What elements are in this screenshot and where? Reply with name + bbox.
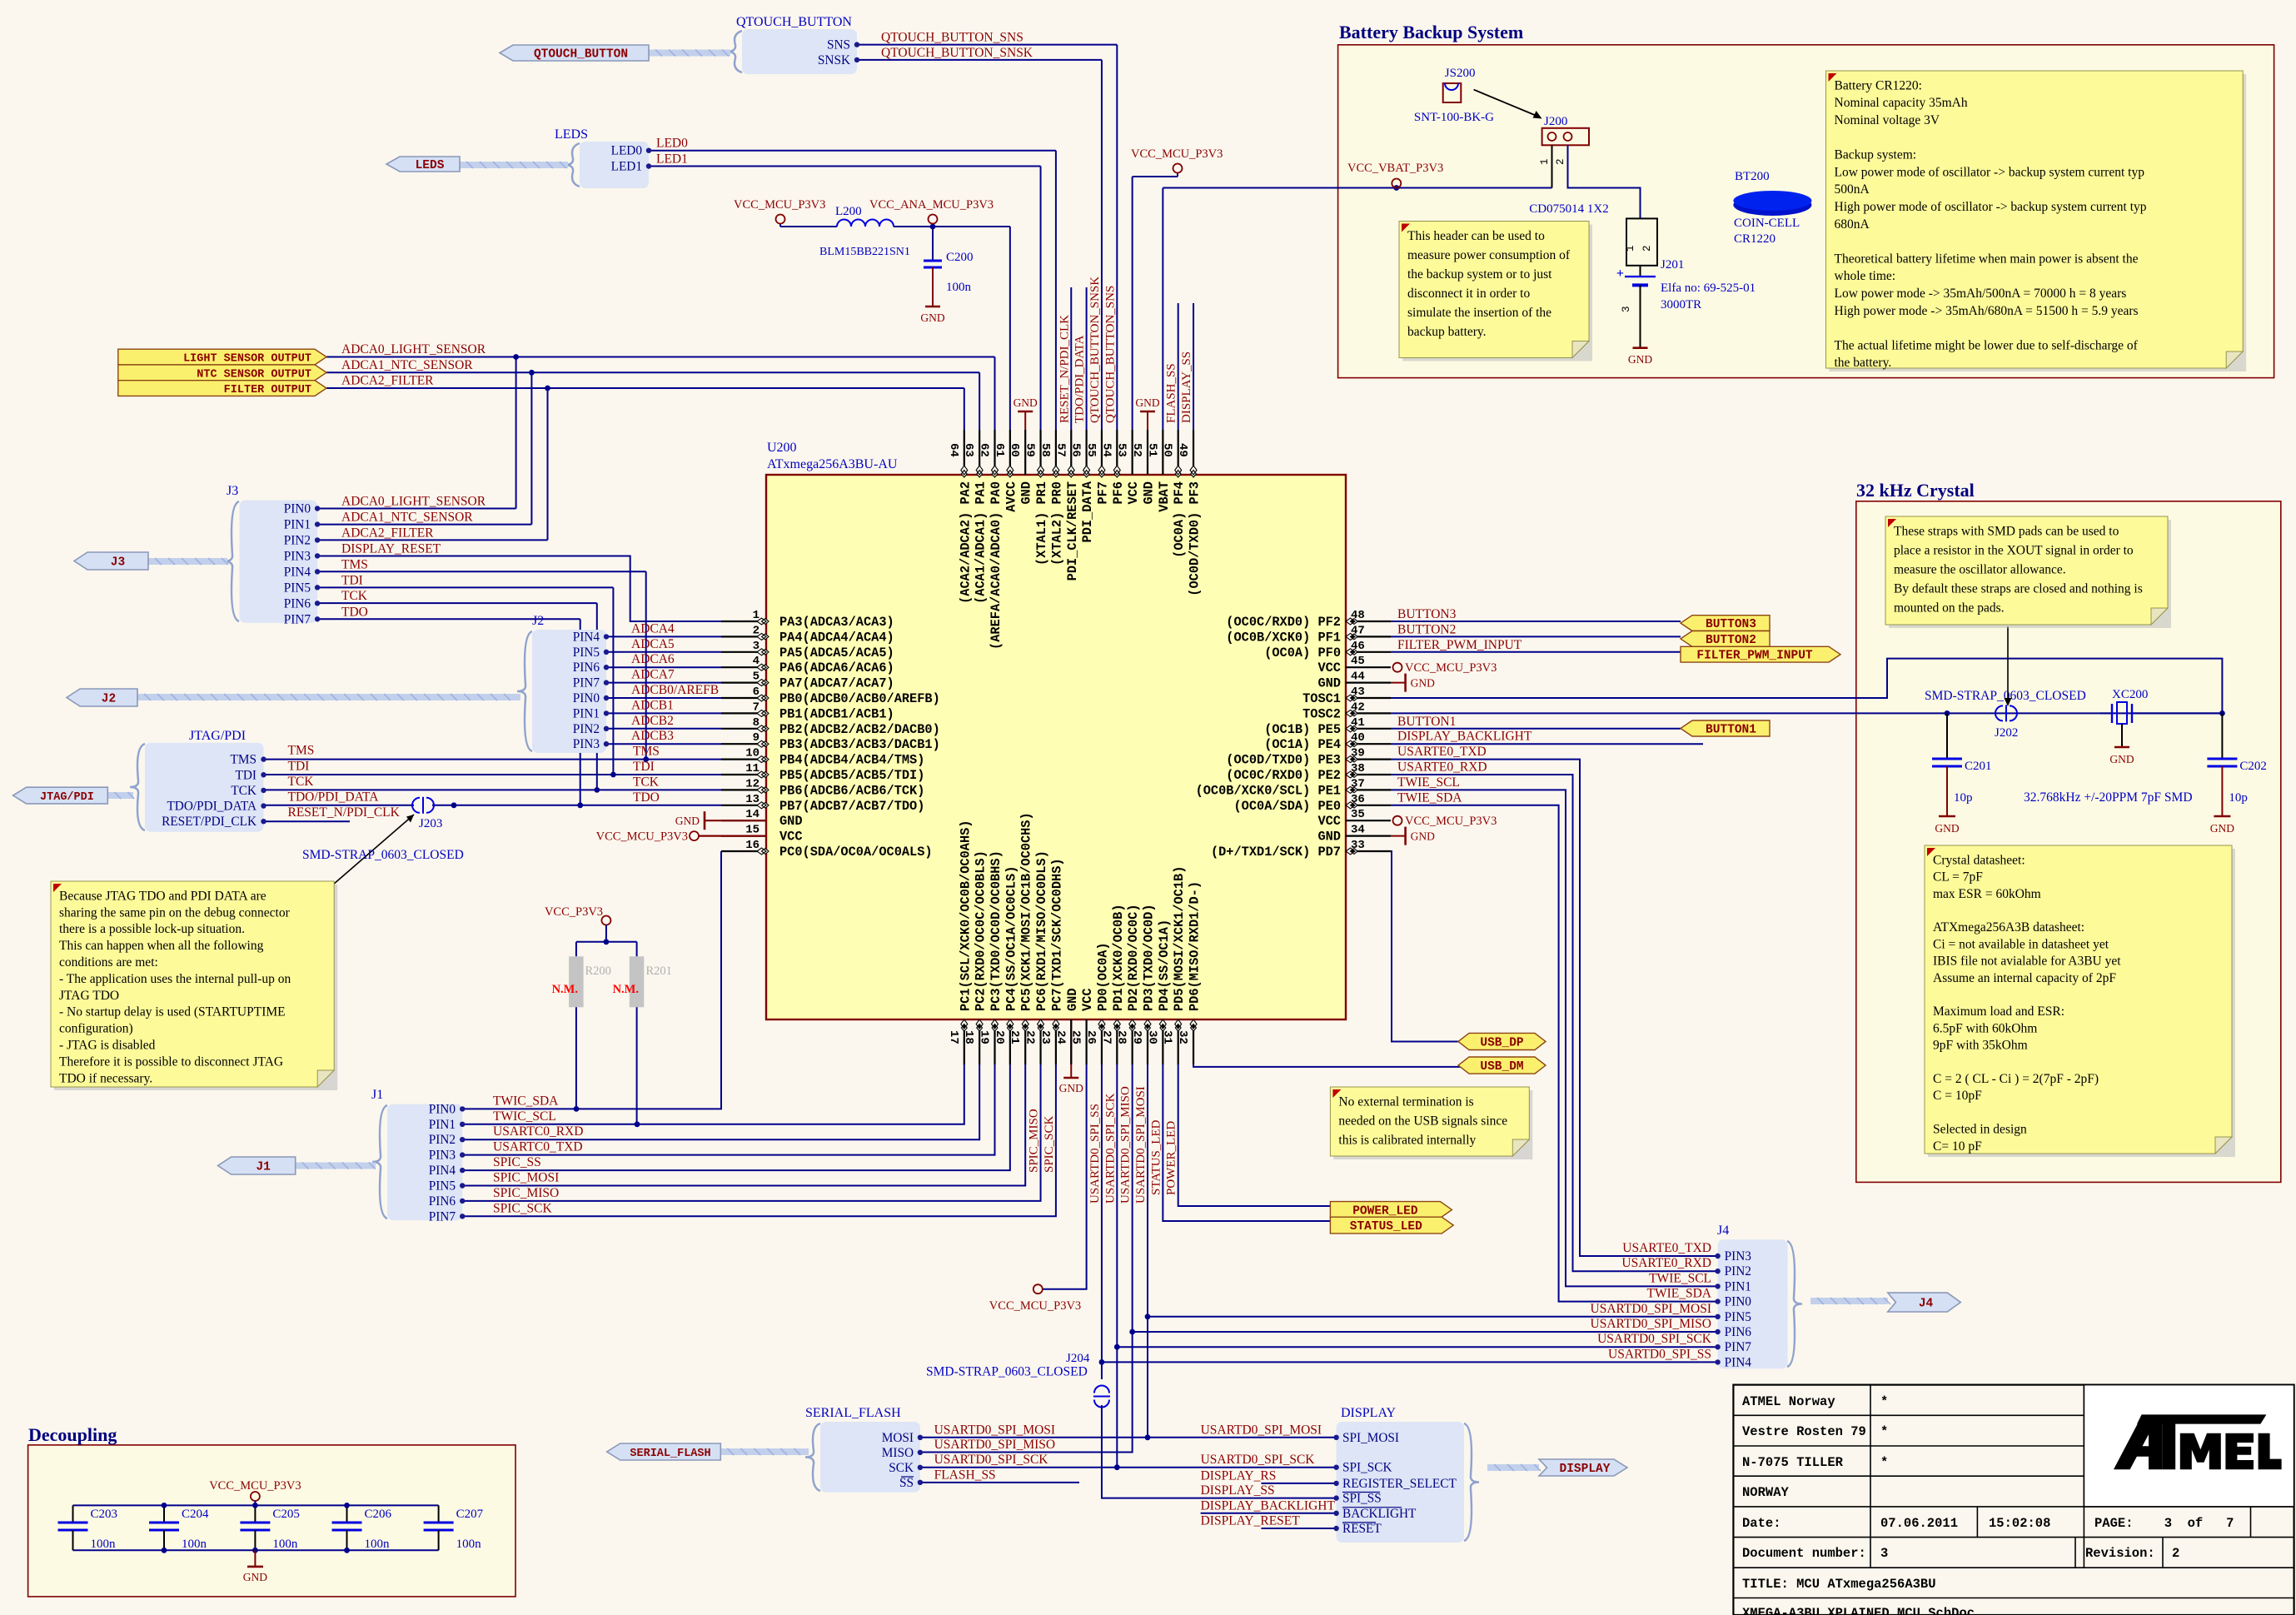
svg-text:SPIC_SS: SPIC_SS: [493, 1155, 541, 1169]
svg-text:Selected in design: Selected in design: [1933, 1123, 2027, 1137]
svg-text:15: 15: [745, 824, 760, 837]
svg-text:TDO: TDO: [633, 790, 660, 805]
svg-text:VCC: VCC: [1080, 988, 1095, 1011]
svg-text:TWIE_SDA: TWIE_SDA: [1397, 790, 1462, 805]
svg-text:14: 14: [745, 808, 760, 821]
svg-text:DISPLAY_RESET: DISPLAY_RESET: [341, 542, 441, 556]
svg-text:PC3(TXD0/OC0D/OC0BHS): PC3(TXD0/OC0D/OC0BHS): [989, 850, 1004, 1011]
svg-text:PIN1: PIN1: [1725, 1279, 1751, 1293]
svg-text:+: +: [1616, 267, 1624, 281]
svg-text:JTAG/PDI: JTAG/PDI: [189, 729, 246, 743]
svg-text:No external termination is: No external termination is: [1338, 1094, 1473, 1109]
svg-text:J202: J202: [1995, 726, 2018, 740]
svg-text:PC2(RXD0/OC0C/OC0BLS): PC2(RXD0/OC0C/OC0BLS): [974, 850, 989, 1011]
svg-text:42: 42: [1351, 700, 1365, 714]
svg-text:Decoupling: Decoupling: [28, 1424, 117, 1445]
svg-text:conditions are met:: conditions are met:: [59, 955, 158, 969]
svg-text:FILTER_PWM_INPUT: FILTER_PWM_INPUT: [1397, 638, 1522, 652]
svg-text:61: 61: [993, 443, 1006, 457]
svg-text:SPI_SCK: SPI_SCK: [1342, 1461, 1392, 1475]
svg-text:C205: C205: [272, 1508, 300, 1521]
svg-text:TCK: TCK: [341, 589, 368, 603]
svg-text:C200: C200: [946, 251, 974, 264]
svg-text:FLASH_SS: FLASH_SS: [934, 1468, 996, 1482]
svg-text:High power mode of oscillator: High power mode of oscillator -> backup …: [1835, 200, 2147, 214]
svg-text:TDO/PDI_DATA: TDO/PDI_DATA: [1073, 335, 1087, 423]
svg-text:BUTTON2: BUTTON2: [1706, 634, 1756, 647]
svg-text:(OC0A) PF4: (OC0A) PF4: [1172, 481, 1187, 558]
svg-text:QTOUCH_BUTTON_SNSK: QTOUCH_BUTTON_SNSK: [1088, 277, 1102, 423]
svg-text:C207: C207: [456, 1508, 484, 1521]
svg-text:TITLE: MCU ATxmega256A3BU: TITLE: MCU ATxmega256A3BU: [1742, 1577, 1936, 1592]
svg-text:30: 30: [1145, 1030, 1158, 1044]
svg-text:DISPLAY_RS: DISPLAY_RS: [1201, 1468, 1277, 1483]
svg-text:43: 43: [1351, 685, 1365, 699]
svg-text:CD075014 1X2: CD075014 1X2: [1529, 202, 1608, 216]
svg-text:TCK: TCK: [633, 775, 660, 789]
svg-text:20: 20: [993, 1030, 1006, 1044]
svg-text:(OC0B/XCK0) PF1: (OC0B/XCK0) PF1: [1226, 630, 1341, 645]
svg-text:FLASH_SS: FLASH_SS: [1165, 363, 1178, 423]
svg-text:36: 36: [1351, 793, 1365, 806]
svg-text:USARTD0_SPI_MISO: USARTD0_SPI_MISO: [934, 1438, 1056, 1452]
svg-text:J3: J3: [111, 556, 125, 570]
svg-text:3: 3: [753, 640, 760, 653]
svg-text:VCC_P3V3: VCC_P3V3: [545, 905, 603, 919]
svg-text:PIN5: PIN5: [1725, 1310, 1752, 1324]
svg-text:J4: J4: [1919, 1298, 1934, 1311]
svg-text:PD3(TXD0/OC0D): PD3(TXD0/OC0D): [1142, 904, 1157, 1011]
svg-text:BUTTON1: BUTTON1: [1397, 715, 1456, 729]
svg-text:ADCA1_NTC_SENSOR: ADCA1_NTC_SENSOR: [341, 358, 473, 372]
svg-text:15:02:08: 15:02:08: [1989, 1516, 2050, 1531]
svg-text:L200: L200: [835, 205, 862, 218]
svg-text:USARTD0_SPI_MOSI: USARTD0_SPI_MOSI: [934, 1423, 1056, 1437]
svg-text:RESET: RESET: [1342, 1522, 1382, 1536]
svg-text:Low power mode -> 35mAh/500nA: Low power mode -> 35mAh/500nA = 70000 h …: [1835, 287, 2127, 301]
svg-text:USARTD0_SPI_SCK: USARTD0_SPI_SCK: [1597, 1332, 1712, 1346]
svg-text:Maximum load and ESR:: Maximum load and ESR:: [1933, 1004, 2064, 1019]
svg-text:Date:: Date:: [1742, 1516, 1781, 1531]
svg-text:48: 48: [1351, 609, 1365, 622]
svg-text:TCK: TCK: [231, 784, 256, 798]
svg-text:45: 45: [1351, 655, 1365, 668]
svg-text:SNT-100-BK-G: SNT-100-BK-G: [1414, 111, 1494, 124]
svg-text:34: 34: [1351, 824, 1365, 837]
svg-text:TCK: TCK: [288, 775, 315, 789]
svg-text:25: 25: [1069, 1030, 1083, 1044]
svg-text:BUTTON2: BUTTON2: [1397, 622, 1456, 636]
svg-text:GND: GND: [1135, 396, 1159, 409]
svg-text:USARTD0_SPI_MISO: USARTD0_SPI_MISO: [1591, 1317, 1712, 1331]
svg-text:J201: J201: [1661, 258, 1684, 272]
svg-text:LED1: LED1: [611, 159, 642, 173]
svg-text:PC0(SDA/OC0A/OC0ALS): PC0(SDA/OC0A/OC0ALS): [779, 845, 933, 860]
svg-text:PIN4: PIN4: [1725, 1355, 1752, 1369]
svg-text:28: 28: [1115, 1030, 1128, 1044]
svg-text:PIN2: PIN2: [1725, 1264, 1751, 1279]
svg-text:SPIC_MISO: SPIC_MISO: [1028, 1109, 1041, 1173]
svg-text:PB2(ADCB2/ACB2/DACB0): PB2(ADCB2/ACB2/DACB0): [779, 722, 940, 737]
svg-text:N.M.: N.M.: [613, 983, 639, 996]
svg-text:GND: GND: [1019, 481, 1034, 505]
svg-text:18: 18: [962, 1030, 975, 1044]
svg-text:TOSC1: TOSC1: [1302, 691, 1341, 706]
svg-text:PIN4: PIN4: [284, 565, 311, 579]
svg-text:(OC0A) PF0: (OC0A) PF0: [1264, 646, 1341, 660]
svg-text:USARTD0_SPI_SCK: USARTD0_SPI_SCK: [1201, 1453, 1316, 1467]
svg-text:VCC_MCU_P3V3: VCC_MCU_P3V3: [209, 1479, 301, 1493]
svg-text:PIN0: PIN0: [284, 502, 311, 516]
svg-text:Assume an internal capacity of: Assume an internal capacity of 2pF: [1933, 971, 2116, 985]
svg-text:(D+/TXD1/SCK) PD7: (D+/TXD1/SCK) PD7: [1211, 845, 1341, 860]
svg-text:PIN3: PIN3: [429, 1149, 456, 1163]
svg-text:LED1: LED1: [656, 152, 688, 167]
svg-text:54: 54: [1099, 443, 1113, 457]
svg-text:LED0: LED0: [611, 144, 643, 158]
svg-text:PD6(MISO/RXD1/D-): PD6(MISO/RXD1/D-): [1188, 881, 1203, 1011]
svg-text:ADCA1_NTC_SENSOR: ADCA1_NTC_SENSOR: [341, 511, 473, 525]
svg-text:PIN4: PIN4: [573, 630, 600, 644]
svg-text:8: 8: [753, 716, 760, 730]
svg-text:VCC_MCU_P3V3: VCC_MCU_P3V3: [734, 198, 825, 212]
svg-text:USARTD0_SPI_MOSI: USARTD0_SPI_MOSI: [1134, 1086, 1148, 1204]
svg-text:BT200: BT200: [1735, 170, 1770, 183]
svg-text:Ci = not available in datashee: Ci = not available in datasheet yet: [1933, 937, 2109, 951]
svg-text:2: 2: [1641, 245, 1653, 252]
svg-text:The actual lifetime might be l: The actual lifetime might be lower due t…: [1835, 338, 2139, 352]
svg-text:PB3(ADCB3/ACB3/DACB1): PB3(ADCB3/ACB3/DACB1): [779, 737, 940, 752]
svg-text:500nA: 500nA: [1835, 182, 1870, 197]
svg-text:TDI: TDI: [341, 573, 363, 587]
svg-text:SERIAL_FLASH: SERIAL_FLASH: [805, 1406, 901, 1420]
svg-text:11: 11: [745, 762, 760, 775]
svg-text:2: 2: [753, 624, 760, 637]
svg-text:2: 2: [1555, 158, 1566, 165]
svg-text:44: 44: [1351, 670, 1365, 684]
svg-text:DISPLAY_BACKLIGHT: DISPLAY_BACKLIGHT: [1201, 1498, 1336, 1513]
svg-text:BUTTON3: BUTTON3: [1397, 607, 1457, 621]
svg-text:DISPLAY_SS: DISPLAY_SS: [1201, 1483, 1275, 1498]
svg-text:USARTC0_TXD: USARTC0_TXD: [493, 1140, 583, 1154]
svg-text:RESET_N/PDI_CLK: RESET_N/PDI_CLK: [1058, 315, 1071, 423]
svg-text:1: 1: [1539, 158, 1551, 165]
svg-text:IBIS file not avialable for A3: IBIS file not avialable for A3BU yet: [1933, 955, 2121, 969]
svg-text:*: *: [1880, 1455, 1888, 1470]
svg-text:C203: C203: [91, 1508, 118, 1521]
svg-text:Backup system:: Backup system:: [1835, 148, 1917, 162]
svg-text:Nominal capacity 35mAh: Nominal capacity 35mAh: [1835, 96, 1968, 110]
svg-text:PF7: PF7: [1095, 481, 1110, 505]
svg-text:ATxmega256A3BU-AU: ATxmega256A3BU-AU: [767, 457, 898, 471]
svg-text:33: 33: [1351, 839, 1365, 852]
svg-text:J4: J4: [1717, 1224, 1729, 1238]
svg-text:GND: GND: [675, 815, 700, 827]
svg-text:STATUS_LED: STATUS_LED: [1350, 1220, 1422, 1234]
svg-text:QTOUCH_BUTTON_SNS: QTOUCH_BUTTON_SNS: [881, 31, 1023, 45]
svg-text:PD2(RXD0/OC0C): PD2(RXD0/OC0C): [1126, 904, 1141, 1011]
svg-text:TMS: TMS: [288, 744, 315, 758]
svg-text:PD5(MOSI/XCK1/OC1B): PD5(MOSI/XCK1/OC1B): [1172, 866, 1187, 1011]
svg-text:PAGE: 3 of 7: PAGE: 3 of 7: [2094, 1516, 2234, 1531]
svg-text:(OC0D/TXD0) PE3: (OC0D/TXD0) PE3: [1226, 753, 1341, 768]
svg-text:CL = 7pF: CL = 7pF: [1933, 870, 1983, 885]
svg-text:40: 40: [1351, 731, 1365, 745]
svg-text:Elfa no: 69-525-01: Elfa no: 69-525-01: [1661, 282, 1756, 295]
svg-text:24: 24: [1053, 1030, 1067, 1044]
svg-text:measure power consumption of: measure power consumption of: [1407, 248, 1571, 262]
svg-text:PIN3: PIN3: [573, 737, 600, 751]
svg-text:C = 10pF: C = 10pF: [1933, 1089, 1982, 1103]
svg-text:C201: C201: [1965, 760, 1992, 773]
svg-text:56: 56: [1069, 443, 1083, 457]
svg-text:FILTER_PWM_INPUT: FILTER_PWM_INPUT: [1696, 650, 1813, 663]
svg-text:SMD-STRAP_0603_CLOSED: SMD-STRAP_0603_CLOSED: [1925, 689, 2086, 703]
svg-text:35: 35: [1351, 808, 1365, 821]
svg-text:RESET/PDI_CLK: RESET/PDI_CLK: [162, 815, 256, 829]
svg-text:Theoretical battery lifetime w: Theoretical battery lifetime when main p…: [1835, 252, 2139, 266]
svg-text:VCC_MCU_P3V3: VCC_MCU_P3V3: [596, 830, 688, 844]
svg-text:USARTE0_RXD: USARTE0_RXD: [1397, 760, 1487, 775]
svg-text:POWER_LED: POWER_LED: [1165, 1121, 1178, 1195]
svg-text:PIN2: PIN2: [573, 722, 600, 736]
svg-text:CR1220: CR1220: [1734, 232, 1776, 246]
svg-text:2: 2: [2172, 1546, 2179, 1561]
svg-text:27: 27: [1099, 1030, 1113, 1044]
svg-text:R201: R201: [646, 965, 672, 978]
svg-text:9: 9: [753, 731, 760, 745]
svg-text:100n: 100n: [946, 281, 972, 294]
svg-text:TWIE_SCL: TWIE_SCL: [1649, 1271, 1711, 1285]
svg-text:GND: GND: [920, 312, 944, 324]
svg-text:ADCA7: ADCA7: [631, 668, 675, 682]
svg-text:TMS: TMS: [231, 753, 256, 767]
svg-text:USB_DM: USB_DM: [1480, 1060, 1523, 1074]
svg-text:U200: U200: [767, 441, 797, 455]
svg-text:PA3(ADCA3/ACA3): PA3(ADCA3/ACA3): [779, 615, 894, 630]
svg-text:(ACA2/ADCA2) PA2: (ACA2/ADCA2) PA2: [958, 481, 973, 604]
svg-text:GND: GND: [2210, 822, 2234, 835]
svg-text:PD4(SS/OC1A): PD4(SS/OC1A): [1157, 920, 1172, 1011]
svg-text:PIN6: PIN6: [1725, 1325, 1752, 1339]
svg-text:max ESR = 60kOhm: max ESR = 60kOhm: [1933, 887, 2041, 901]
svg-text:PD0(OC0A): PD0(OC0A): [1095, 942, 1110, 1011]
svg-text:PA7(ADCA7/ACA7): PA7(ADCA7/ACA7): [779, 676, 894, 691]
svg-text:TDI: TDI: [288, 759, 310, 773]
svg-text:BUTTON1: BUTTON1: [1706, 724, 1756, 737]
svg-text:VCC: VCC: [1126, 481, 1141, 505]
svg-text:PIN7: PIN7: [429, 1209, 456, 1224]
svg-text:(XTAL1) PR1: (XTAL1) PR1: [1034, 481, 1049, 566]
svg-text:mounted on the pads.: mounted on the pads.: [1894, 601, 2005, 615]
svg-text:J200: J200: [1544, 115, 1567, 128]
svg-text:PIN7: PIN7: [573, 676, 600, 690]
svg-text:PIN3: PIN3: [1725, 1249, 1752, 1264]
svg-text:07.06.2011: 07.06.2011: [1880, 1516, 1958, 1531]
svg-text:SPIC_SCK: SPIC_SCK: [1043, 1115, 1056, 1173]
svg-text:PIN7: PIN7: [284, 612, 311, 626]
svg-text:DISPLAY_BACKLIGHT: DISPLAY_BACKLIGHT: [1397, 730, 1532, 744]
svg-text:PB1(ADCB1/ACB1): PB1(ADCB1/ACB1): [779, 706, 894, 721]
svg-text:5: 5: [753, 670, 760, 684]
svg-text:VCC_ANA_MCU_P3V3: VCC_ANA_MCU_P3V3: [869, 198, 994, 212]
svg-text:VBAT: VBAT: [1157, 481, 1172, 512]
svg-text:C206: C206: [365, 1508, 392, 1521]
svg-text:USARTD0_SPI_MOSI: USARTD0_SPI_MOSI: [1201, 1423, 1322, 1437]
svg-text:38: 38: [1351, 762, 1365, 775]
svg-text:USARTC0_RXD: USARTC0_RXD: [493, 1124, 583, 1139]
svg-text:QTOUCH_BUTTON_SNS: QTOUCH_BUTTON_SNS: [1103, 286, 1117, 423]
svg-text:LEDS: LEDS: [555, 127, 588, 142]
svg-text:COIN-CELL: COIN-CELL: [1734, 217, 1800, 230]
svg-text:*: *: [1880, 1424, 1888, 1439]
svg-text:- No startup delay is used (ST: - No startup delay is used (STARTUPTIME: [59, 1005, 286, 1019]
svg-text:37: 37: [1351, 777, 1365, 790]
svg-text:MISO: MISO: [882, 1446, 914, 1460]
svg-text:QTOUCH_BUTTON: QTOUCH_BUTTON: [736, 15, 852, 29]
svg-text:QTOUCH_BUTTON_SNSK: QTOUCH_BUTTON_SNSK: [881, 46, 1033, 60]
svg-text:These straps with SMD pads can: These straps with SMD pads can be used t…: [1894, 524, 2119, 538]
svg-text:TDI: TDI: [236, 768, 257, 782]
svg-text:TDO if necessary.: TDO if necessary.: [59, 1071, 152, 1085]
svg-text:J203: J203: [419, 817, 442, 830]
svg-text:ADCB0/AREFB: ADCB0/AREFB: [631, 683, 719, 697]
svg-text:3: 3: [1880, 1546, 1888, 1561]
svg-text:DISPLAY_SS: DISPLAY_SS: [1180, 351, 1193, 423]
svg-text:(AREFA/ACA0/ADCA0) PA0: (AREFA/ACA0/ADCA0) PA0: [989, 481, 1004, 650]
svg-text:Vestre Rosten 79: Vestre Rosten 79: [1742, 1424, 1866, 1439]
svg-text:LED0: LED0: [656, 137, 688, 151]
svg-text:SMD-STRAP_0603_CLOSED: SMD-STRAP_0603_CLOSED: [926, 1365, 1088, 1379]
svg-text:PC7(TXD1/SCK/OC0DHS): PC7(TXD1/SCK/OC0DHS): [1049, 858, 1064, 1011]
svg-text:50: 50: [1161, 443, 1174, 457]
svg-text:C202: C202: [2239, 760, 2267, 773]
svg-text:TMS: TMS: [341, 557, 368, 571]
svg-text:(OC0D/TXD0) PF3: (OC0D/TXD0) PF3: [1188, 481, 1203, 596]
svg-text:1: 1: [753, 609, 760, 622]
svg-text:3000TR: 3000TR: [1661, 298, 1701, 312]
svg-text:47: 47: [1351, 624, 1365, 637]
svg-text:GND: GND: [1935, 822, 1959, 835]
svg-text:measure the oscillator allowan: measure the oscillator allowance.: [1894, 562, 2066, 576]
svg-text:PIN3: PIN3: [284, 549, 311, 563]
svg-text:REGISTER_SELECT: REGISTER_SELECT: [1342, 1477, 1457, 1491]
svg-text:(OC0C/RXD0) PF2: (OC0C/RXD0) PF2: [1226, 615, 1341, 630]
svg-text:PDI_CLK/RESET: PDI_CLK/RESET: [1065, 481, 1080, 581]
svg-text:ATMEL Norway: ATMEL Norway: [1742, 1394, 1835, 1409]
svg-text:C = 2 ( CL - Ci ) = 2(7pF - 2p: C = 2 ( CL - Ci ) = 2(7pF - 2pF): [1933, 1072, 2099, 1086]
svg-text:SNS: SNS: [827, 38, 850, 52]
svg-text:39: 39: [1351, 747, 1365, 760]
svg-text:USARTD0_SPI_SCK: USARTD0_SPI_SCK: [934, 1453, 1049, 1467]
svg-text:PIN1: PIN1: [429, 1118, 456, 1132]
svg-text:BUTTON3: BUTTON3: [1706, 618, 1756, 631]
svg-text:10p: 10p: [2229, 791, 2248, 805]
svg-text:PIN2: PIN2: [284, 533, 311, 547]
svg-text:59: 59: [1023, 443, 1037, 457]
svg-text:PIN6: PIN6: [573, 660, 600, 675]
svg-text:this is calibrated internally: this is calibrated internally: [1338, 1133, 1476, 1147]
svg-text:VCC: VCC: [779, 830, 803, 845]
svg-text:BACKLIGHT: BACKLIGHT: [1342, 1507, 1417, 1521]
svg-text:TWIC_SCL: TWIC_SCL: [493, 1109, 556, 1124]
svg-text:100n: 100n: [365, 1538, 391, 1551]
svg-text:QTOUCH_BUTTON: QTOUCH_BUTTON: [534, 48, 628, 62]
svg-text:Crystal datasheet:: Crystal datasheet:: [1933, 853, 2025, 867]
svg-text:ADCB2: ADCB2: [631, 714, 674, 728]
svg-text:sharing the same pin on the de: sharing the same pin on the debug connec…: [59, 905, 291, 920]
svg-text:SPI_MOSI: SPI_MOSI: [1342, 1431, 1399, 1445]
svg-text:(XTAL2) PR0: (XTAL2) PR0: [1049, 481, 1064, 566]
svg-text:PA6(ADCA6/ACA6): PA6(ADCA6/ACA6): [779, 660, 894, 675]
svg-text:TWIC_SDA: TWIC_SDA: [493, 1094, 559, 1108]
svg-text:100n: 100n: [91, 1538, 117, 1551]
svg-text:(OC1A) PE4: (OC1A) PE4: [1264, 737, 1341, 752]
svg-text:PB7(ADCB7/ACB7/TDO): PB7(ADCB7/ACB7/TDO): [779, 799, 924, 814]
svg-text:SPIC_SCK: SPIC_SCK: [493, 1201, 552, 1215]
svg-text:- JTAG is disabled: - JTAG is disabled: [59, 1039, 156, 1053]
svg-text:GND: GND: [1142, 481, 1157, 505]
svg-text:13: 13: [745, 793, 760, 806]
svg-text:46: 46: [1351, 640, 1365, 653]
svg-text:VCC_VBAT_P3V3: VCC_VBAT_P3V3: [1347, 162, 1443, 175]
svg-text:LIGHT SENSOR OUTPUT: LIGHT SENSOR OUTPUT: [183, 353, 311, 366]
svg-text:PB0(ADCB0/ACB0/AREFB): PB0(ADCB0/ACB0/AREFB): [779, 691, 940, 706]
svg-text:PB4(ADCB4/ACB4/TMS): PB4(ADCB4/ACB4/TMS): [779, 753, 924, 768]
svg-text:ADCA5: ADCA5: [631, 637, 675, 651]
svg-text:USARTD0_SPI_MOSI: USARTD0_SPI_MOSI: [1591, 1302, 1712, 1316]
svg-text:9pF with 35kOhm: 9pF with 35kOhm: [1933, 1039, 2028, 1053]
svg-text:100n: 100n: [272, 1538, 298, 1551]
svg-text:J2: J2: [102, 693, 116, 706]
svg-text:PDI_DATA: PDI_DATA: [1080, 481, 1095, 542]
svg-text:DISPLAY_RESET: DISPLAY_RESET: [1201, 1514, 1301, 1528]
svg-text:BLM15BB221SN1: BLM15BB221SN1: [819, 246, 910, 258]
svg-text:TDO: TDO: [341, 605, 368, 619]
svg-text:whole time:: whole time:: [1835, 269, 1896, 283]
svg-text:GND: GND: [1065, 988, 1080, 1011]
svg-text:GND: GND: [1059, 1082, 1083, 1094]
svg-text:VCC_MCU_P3V3: VCC_MCU_P3V3: [1405, 661, 1497, 675]
svg-text:FILTER OUTPUT: FILTER OUTPUT: [224, 384, 311, 396]
svg-text:ATXmega256A3B datasheet:: ATXmega256A3B datasheet:: [1933, 920, 2084, 935]
svg-text:MOSI: MOSI: [882, 1431, 914, 1445]
svg-text:USARTD0_SPI_SS: USARTD0_SPI_SS: [1608, 1347, 1711, 1361]
svg-text:PIN0: PIN0: [429, 1102, 456, 1116]
svg-text:PIN6: PIN6: [429, 1194, 456, 1209]
svg-text:- The application uses the int: - The application uses the internal pull…: [59, 972, 291, 986]
svg-text:GND: GND: [1411, 677, 1435, 690]
svg-text:JTAG/PDI: JTAG/PDI: [40, 791, 94, 804]
svg-text:SNSK: SNSK: [818, 53, 850, 67]
svg-text:10: 10: [745, 747, 760, 760]
svg-text:ADCA0_LIGHT_SENSOR: ADCA0_LIGHT_SENSOR: [341, 342, 486, 356]
svg-text:there is a possible lock-up si: there is a possible lock-up situation.: [59, 922, 245, 936]
svg-text:J204: J204: [1066, 1352, 1090, 1365]
svg-text:GND: GND: [243, 1571, 267, 1583]
svg-text:32.768kHz +/-20PPM 7pF SMD: 32.768kHz +/-20PPM 7pF SMD: [2024, 790, 2193, 805]
svg-text:PIN5: PIN5: [573, 646, 600, 660]
svg-text:ADCB3: ADCB3: [631, 729, 674, 743]
svg-text:C= 10 pF: C= 10 pF: [1933, 1139, 1982, 1154]
svg-text:High power mode -> 35mAh/680nA: High power mode -> 35mAh/680nA = 51500 h…: [1835, 304, 2139, 318]
svg-text:PIN5: PIN5: [284, 581, 311, 595]
svg-text:place a resistor in the XOUT s: place a resistor in the XOUT signal in o…: [1894, 543, 2134, 557]
svg-text:backup battery.: backup battery.: [1407, 325, 1487, 339]
svg-text:USARTE0_TXD: USARTE0_TXD: [1622, 1241, 1711, 1255]
svg-text:19: 19: [978, 1030, 991, 1044]
svg-text:DISPLAY: DISPLAY: [1560, 1463, 1611, 1476]
